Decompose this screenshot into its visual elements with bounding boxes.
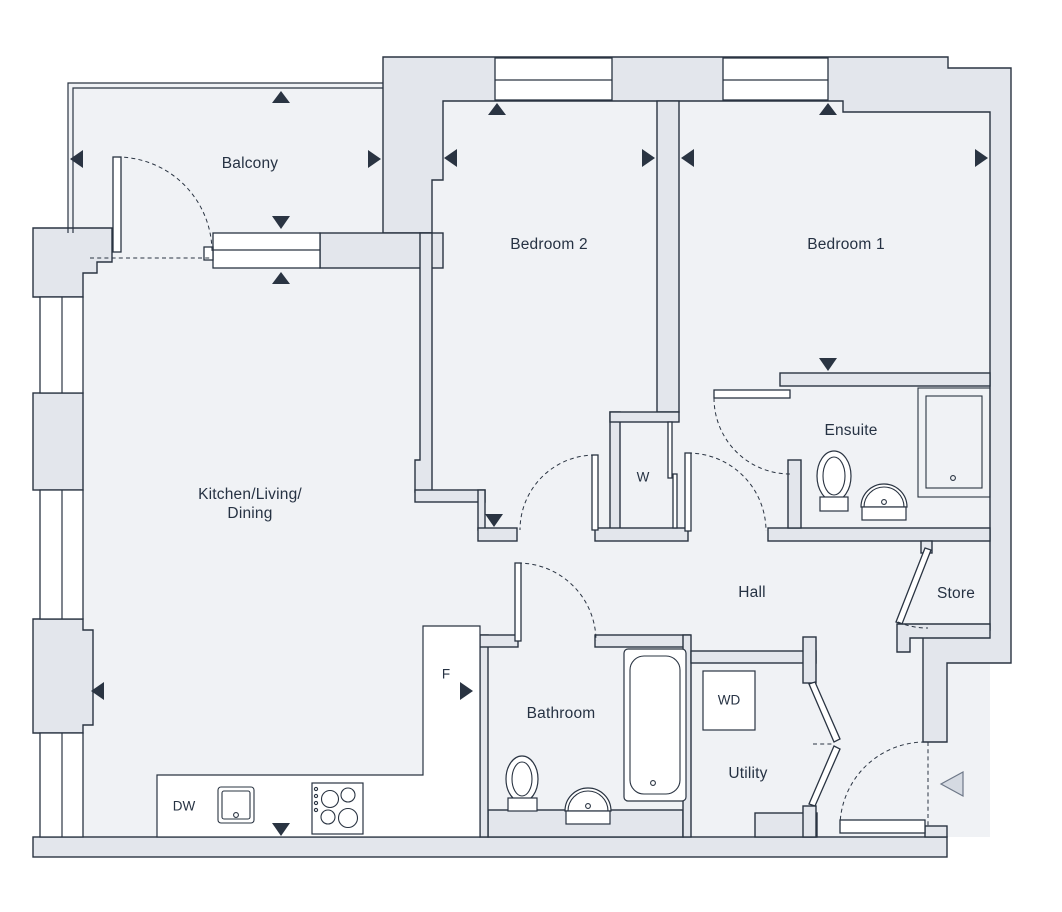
balcony-door-leaf [113,157,121,252]
ensuite-basin-pedestal [862,507,906,520]
bedroom1-window [723,58,828,100]
entry-door-leaf [840,820,925,833]
bathroom-west-wall [480,635,488,837]
balcony-label: Balcony [222,155,279,172]
ensuite-west-stub [788,460,801,528]
bedroom1-door-leaf [685,453,691,531]
bedroom2-window [495,58,612,100]
bedroom2-door-leaf [592,455,598,530]
ensuite-label: Ensuite [824,422,877,439]
hall-north-wall-center [595,528,688,541]
hob [312,783,363,834]
bedroom1-label: Bedroom 1 [807,236,885,253]
kitchen-label-line1: Kitchen/Living/ [198,486,302,503]
bathroom-label: Bathroom [527,705,596,722]
bathroom-basin-pedestal [566,811,610,824]
hall-label: Hall [738,584,766,601]
wardrobe-top-wall [610,412,679,422]
bedroom2-label: Bedroom 2 [510,236,588,253]
ensuite-north-wall [780,373,990,386]
bathroom-toilet-outer [506,756,538,802]
wardrobe-slider-2 [673,474,677,528]
utility-door-jamb-top [803,637,816,683]
utility-label: Utility [728,765,767,782]
store-label: Store [937,585,975,602]
ensuite-toilet-outer [817,451,851,501]
interior-floor [83,101,990,837]
bedroom2-southwest-wall [415,490,485,502]
bathroom-north-wall [595,635,690,647]
west-wall-pier-block [33,619,93,733]
hall-northwest-wall [478,528,517,541]
bedrooms-divider-wall [657,101,679,412]
west-wall-mid-block [33,393,83,490]
bathtub-outer [624,649,686,801]
utility-north-wall [691,651,816,663]
bathroom-toilet-base [508,798,537,811]
dishwasher-label: DW [173,799,196,814]
ensuite-door-leaf [714,390,790,398]
hall-north-wall-east [768,528,990,541]
entry-corner-wall [925,826,947,837]
utility-door-jamb-bottom [803,806,816,837]
bedroom2-wall-step [478,490,485,530]
room-fills [68,83,990,837]
wardrobe-label: W [637,470,650,485]
south-wall [33,837,947,857]
wardrobe-slider-1 [668,422,672,478]
floor-plan: Balcony Bedroom 2 Bedroom 1 Kitchen/Livi… [0,0,1062,912]
bathroom-door-leaf [515,563,521,641]
ensuite-toilet-base [820,497,848,511]
floor-plan-page: Balcony Bedroom 2 Bedroom 1 Kitchen/Livi… [0,0,1062,912]
fridge-label: F [442,667,450,682]
washer-dryer-label: WD [718,693,741,708]
bathroom-door-stub [480,635,518,647]
wardrobe-left-wall [610,412,620,530]
kitchen-label-line2: Dining [227,505,272,522]
